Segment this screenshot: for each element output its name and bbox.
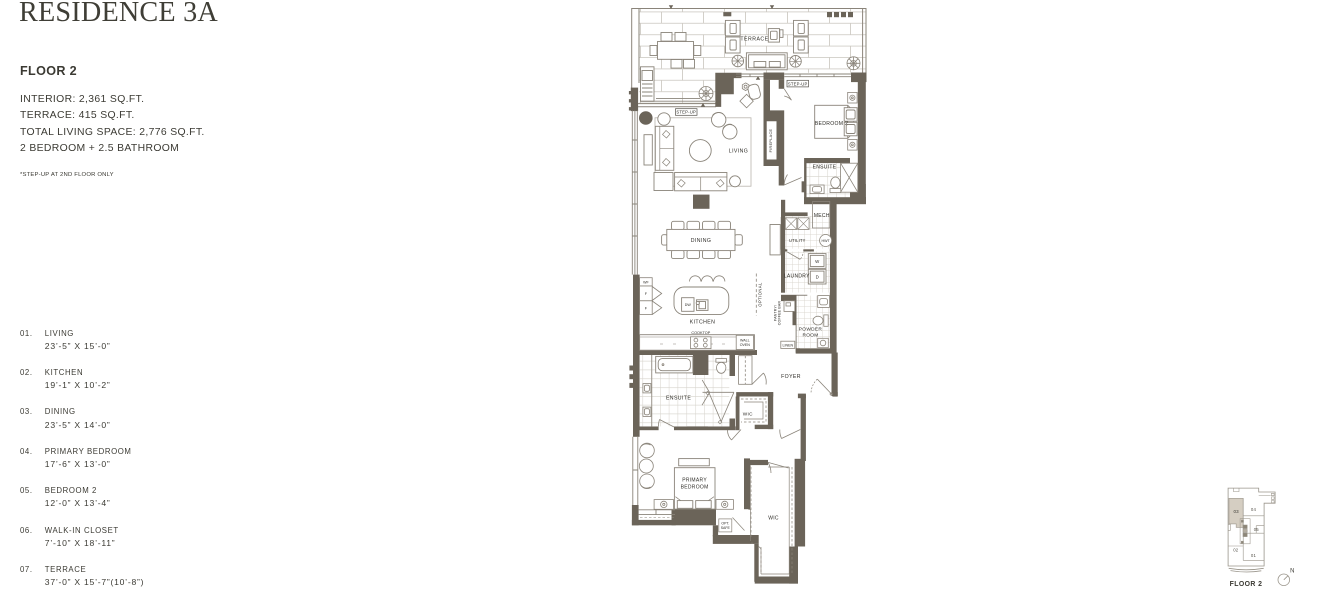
svg-text:KITCHEN: KITCHEN: [690, 320, 716, 326]
svg-text:DW: DW: [685, 303, 692, 307]
svg-text:WIC: WIC: [743, 412, 753, 417]
svg-text:SAFE: SAFE: [721, 526, 731, 530]
svg-text:FLOOR 2: FLOOR 2: [1230, 581, 1263, 588]
svg-text:02: 02: [1233, 548, 1239, 553]
svg-text:OVEN: OVEN: [740, 343, 751, 347]
svg-text:MECH: MECH: [814, 213, 830, 219]
svg-text:OPT.: OPT.: [721, 521, 729, 525]
svg-text:TERRACE: TERRACE: [740, 37, 768, 43]
svg-text:DINING: DINING: [691, 238, 712, 244]
svg-text:LAUNDRY: LAUNDRY: [784, 274, 810, 280]
svg-text:BEDROOM: BEDROOM: [681, 484, 709, 490]
svg-text:D: D: [816, 275, 819, 280]
svg-text:POWDER: POWDER: [799, 326, 823, 332]
svg-text:ENSUITE: ENSUITE: [666, 395, 691, 401]
svg-text:STEP-UP: STEP-UP: [676, 110, 696, 115]
svg-text:BEDROOM 2: BEDROOM 2: [815, 121, 848, 127]
svg-text:HWT: HWT: [822, 239, 831, 243]
svg-text:N: N: [1290, 568, 1294, 574]
svg-text:LINEN: LINEN: [783, 343, 794, 347]
svg-text:04: 04: [1251, 507, 1257, 512]
svg-text:01: 01: [1251, 553, 1257, 558]
svg-text:STEP-UP: STEP-UP: [788, 81, 808, 86]
svg-text:FOYER: FOYER: [781, 374, 801, 380]
svg-text:WALL: WALL: [740, 338, 750, 342]
svg-text:COOKTOP: COOKTOP: [691, 331, 710, 335]
svg-text:03: 03: [1233, 509, 1239, 514]
svg-text:WF: WF: [643, 281, 649, 285]
svg-text:COFFEE BAR: COFFEE BAR: [778, 301, 782, 326]
svg-text:LIVING: LIVING: [729, 148, 748, 154]
svg-text:FIREPLACE: FIREPLACE: [769, 128, 773, 152]
svg-text:OPTIONAL: OPTIONAL: [758, 282, 763, 307]
svg-text:WIC: WIC: [768, 516, 779, 522]
svg-text:PRIMARY: PRIMARY: [682, 477, 707, 483]
svg-text:UTILITY: UTILITY: [789, 238, 806, 243]
svg-text:ENSUITE: ENSUITE: [813, 164, 837, 170]
svg-text:05: 05: [1254, 527, 1260, 532]
svg-text:ROOM: ROOM: [802, 332, 818, 338]
